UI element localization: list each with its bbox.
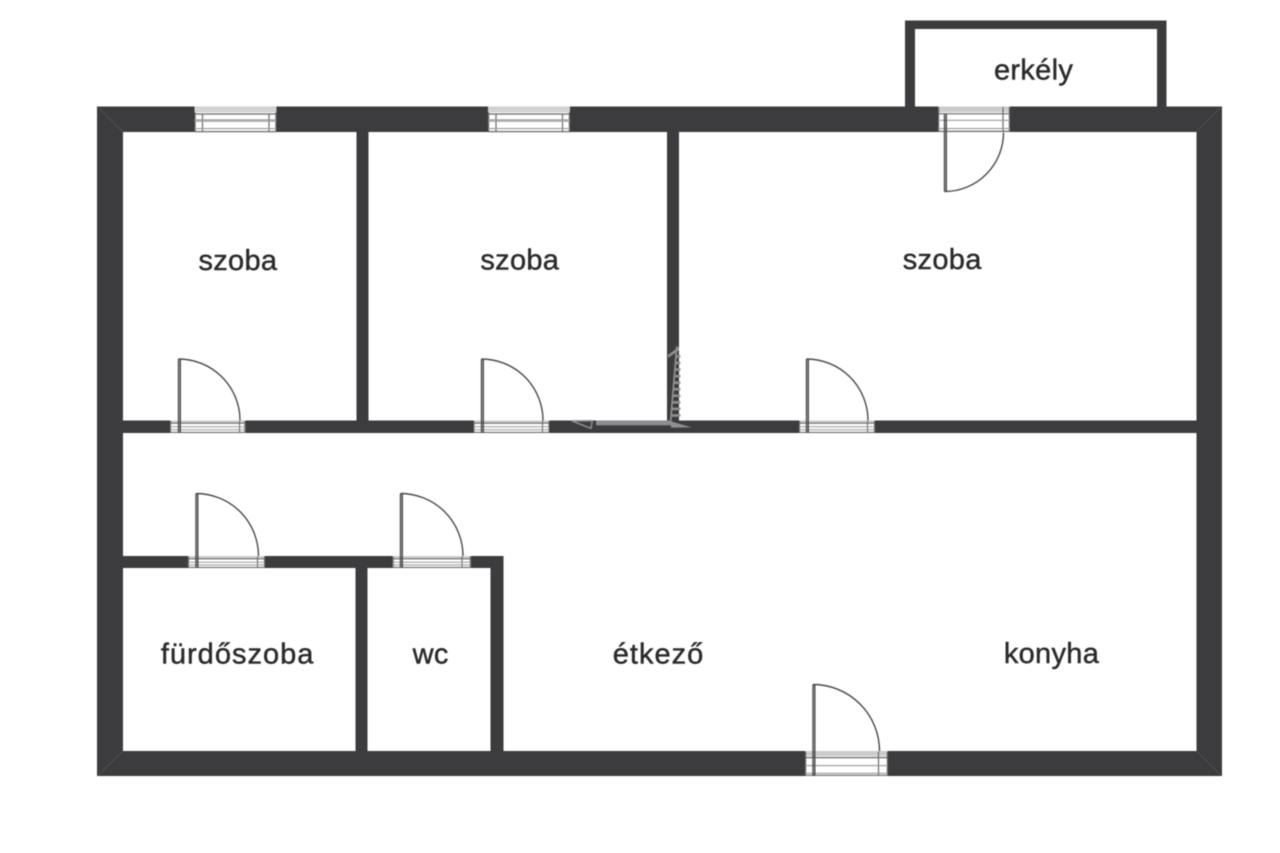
svg-text:étkező: étkező [613,638,704,670]
svg-text:konyha: konyha [1004,638,1100,670]
svg-text:wc: wc [412,639,449,671]
svg-text:szoba: szoba [903,244,982,276]
svg-text:szoba: szoba [480,244,559,276]
svg-text:fürdőszoba: fürdőszoba [161,638,315,670]
svg-text:szoba: szoba [198,245,277,277]
svg-text:erkély: erkély [994,55,1073,87]
